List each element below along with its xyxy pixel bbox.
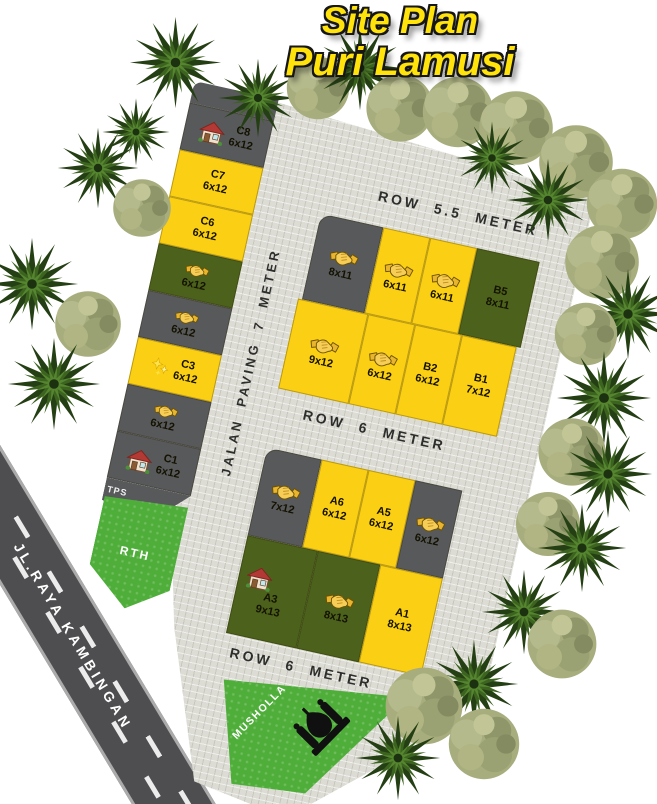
title-line2: Puri Lamusi — [170, 43, 630, 81]
mosque-icon — [284, 689, 353, 758]
title-line1: Site Plan — [170, 2, 630, 40]
plot-size: 6x12 — [321, 507, 347, 523]
plot-size: 6x12 — [227, 137, 253, 153]
estate-area: JALAN PAVING 7 METER ROW 5.5 METER ROW 6… — [0, 42, 656, 804]
plot-size: 6x12 — [414, 373, 440, 389]
plot-size: 6x12 — [155, 465, 181, 481]
tps-label: TPS — [106, 484, 128, 498]
plot-size: 7x12 — [465, 384, 491, 400]
plot-size: 6x12 — [172, 370, 198, 386]
plot-size: 8x13 — [386, 619, 412, 635]
rth-label: RTH — [119, 543, 152, 563]
house-icon — [197, 118, 227, 146]
site-plan-canvas: JL.RAYA KAMBINGAN JALAN PAVING 7 METER R… — [0, 0, 657, 804]
plot-size: 6x12 — [191, 227, 217, 243]
page-title: Site Plan Puri Lamusi — [170, 2, 630, 81]
plot-size: 8x11 — [485, 296, 511, 312]
house-icon — [124, 446, 154, 474]
plot-size: 9x13 — [254, 604, 280, 620]
palm-tree-icon — [0, 236, 80, 332]
plot-size: 6x12 — [368, 517, 394, 533]
sparkles-icon — [149, 355, 172, 378]
plot-size: 6x12 — [202, 180, 228, 196]
musholla-label: MUSHOLLA — [230, 682, 289, 741]
house-icon — [244, 564, 274, 592]
